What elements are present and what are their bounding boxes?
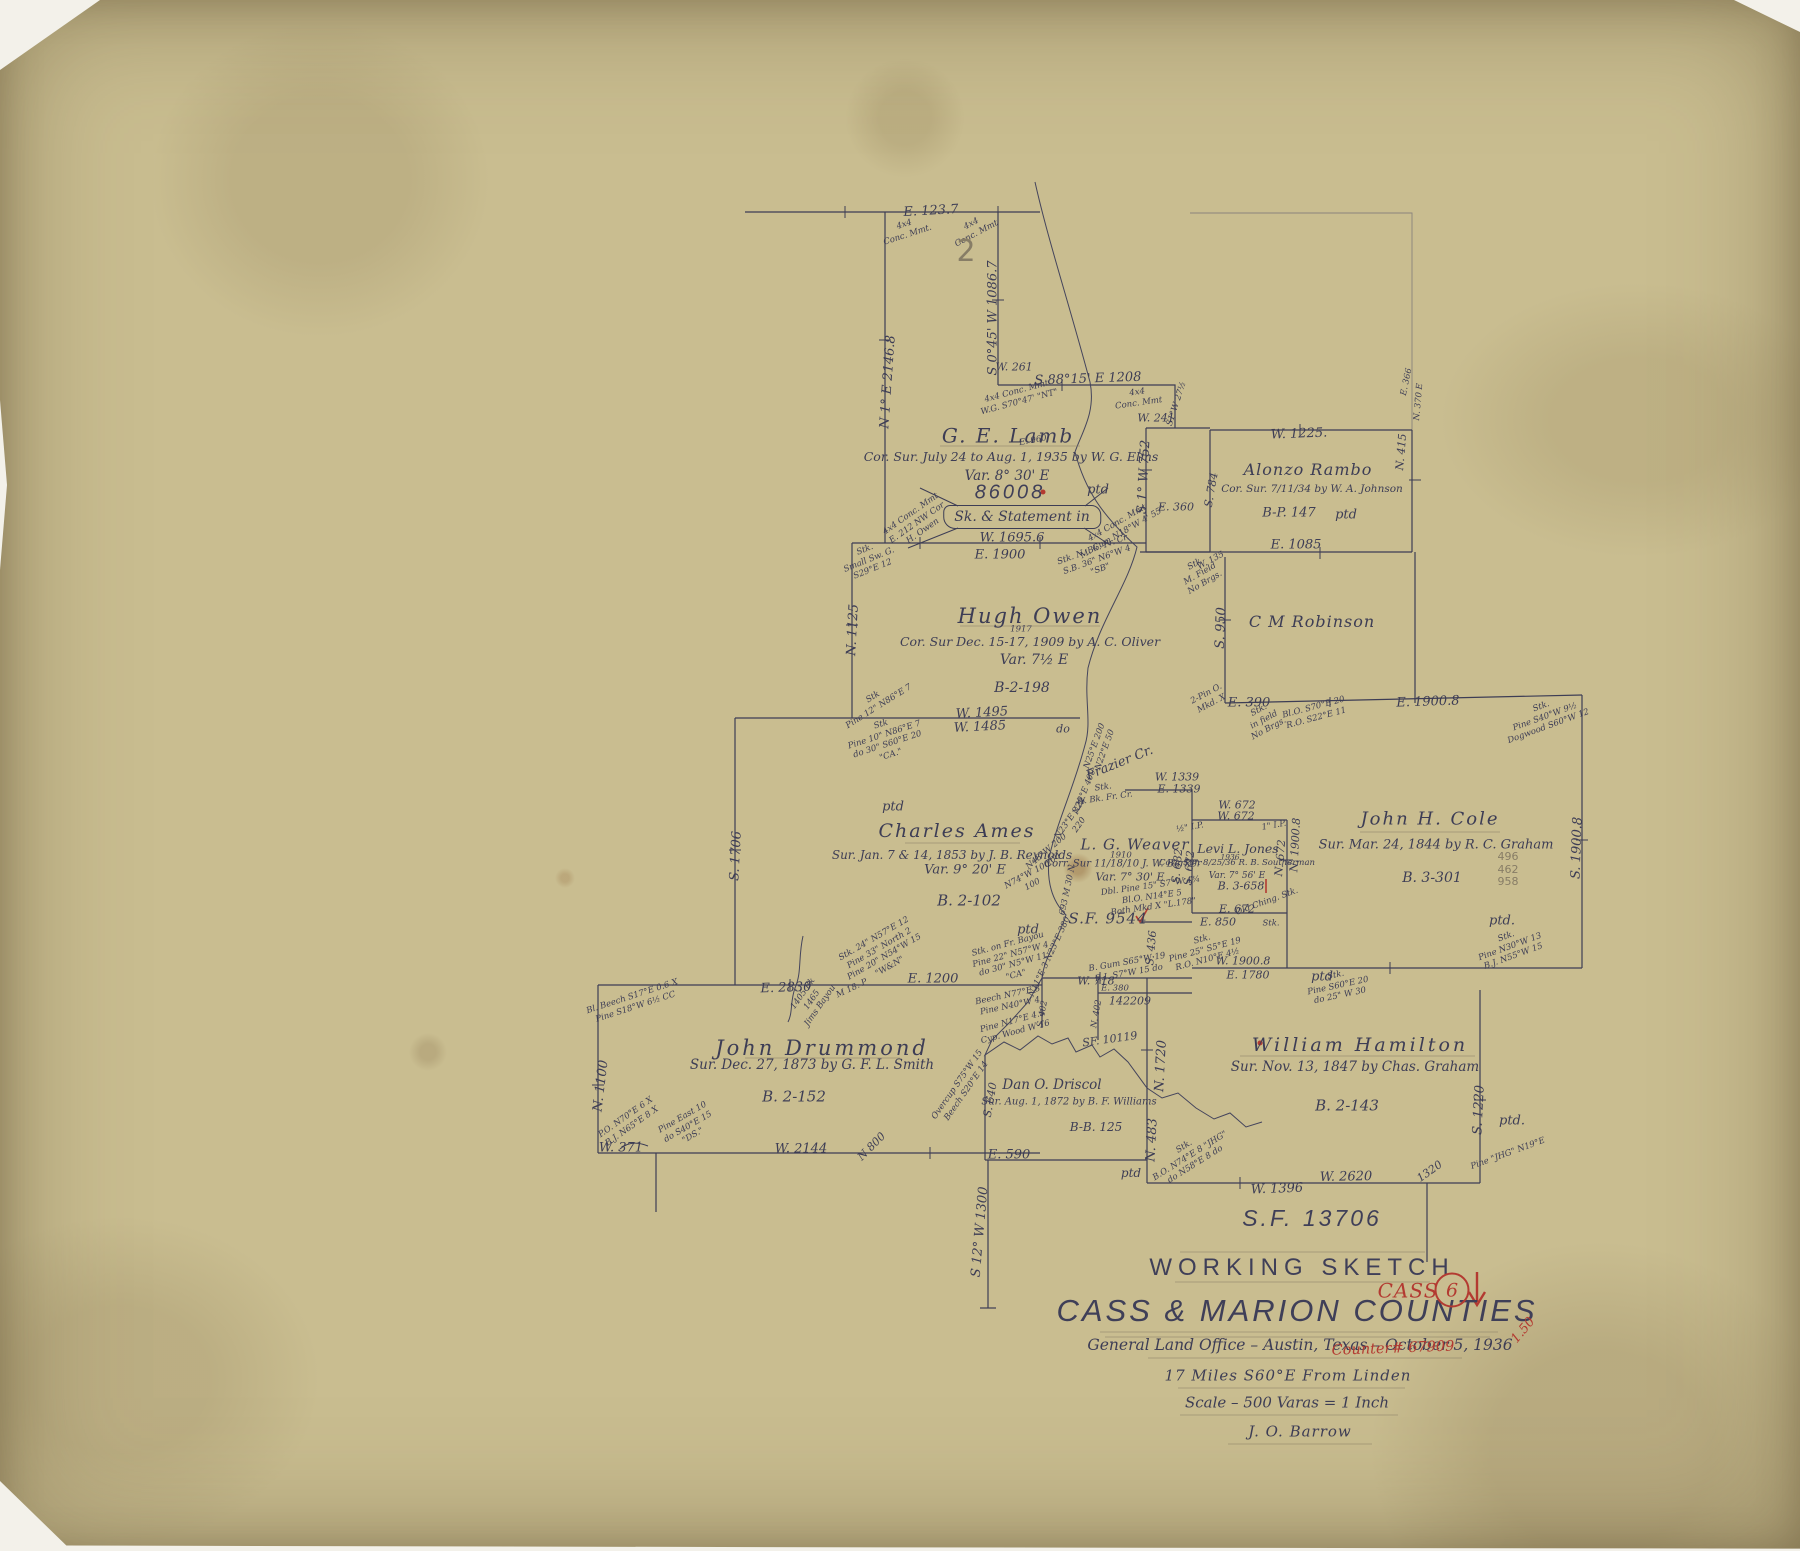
sheet-file-number: S.F. 13706 <box>1242 1205 1382 1231</box>
ptd-note-ames: ptd <box>882 801 904 816</box>
survey-ref-rambo: B-P. 147 <box>1262 507 1315 522</box>
survey-file-lamb: 86008 <box>975 482 1046 505</box>
measurement-label: W. 1485 <box>953 719 1006 737</box>
measurement-label: S. 1706 <box>728 831 746 882</box>
measurement-label: W. 1396 <box>1251 1182 1304 1199</box>
survey-note-hamilton: Sur. Nov. 13, 1847 by Chas. Graham <box>1231 1060 1479 1076</box>
survey-ref-ames: B. 2-102 <box>937 892 1001 909</box>
survey-ref-drummond: B. 2-152 <box>762 1088 826 1105</box>
measurement-label: W. 261 <box>995 362 1032 375</box>
sheet-scale-line: Scale – 500 Varas = 1 Inch <box>1185 1394 1389 1411</box>
measurement-label: N. 1720 <box>1153 1040 1171 1093</box>
survey-note-owen: Cor. Sur Dec. 15-17, 1909 by A. C. Olive… <box>900 635 1160 649</box>
measurement-label: W. 1900.8 <box>1216 956 1271 969</box>
measurement-label: W. 2620 <box>1320 1170 1373 1186</box>
margin-figures: 496 462 958 <box>1498 851 1519 889</box>
survey-sketch-sheet: G. E. Lamb Cor. Sur. July 24 to Aug. 1, … <box>0 0 1800 1551</box>
ptd-note-cole: ptd. <box>1489 915 1515 930</box>
survey-name-driscol: Dan O. Driscol <box>1002 1078 1101 1094</box>
survey-note-rambo: Cor. Sur. 7/11/34 by W. A. Johnson <box>1221 483 1403 495</box>
county-stamp: CASS <box>1378 1280 1439 1303</box>
measurement-label: E. 380 <box>1101 984 1129 995</box>
ptd-note-lamb: ptd <box>1087 484 1109 499</box>
survey-note-driscol: Sur. Aug. 1, 1872 by B. F. Williams <box>981 1096 1156 1108</box>
ptd-note-driscol: ptd <box>1121 1167 1141 1181</box>
ptd-note: ptd <box>1017 924 1039 939</box>
measurement-label: E. 1200 <box>908 973 959 988</box>
statement-box: Sk. & Statement in <box>943 505 1101 529</box>
measurement-label: E. 1085 <box>1271 539 1322 554</box>
measurement-label: W. 1695.6 <box>980 532 1045 547</box>
survey-ref-cole: B. 3-301 <box>1402 870 1462 886</box>
survey-note-lamb: Cor. Sur. July 24 to Aug. 1, 1935 by W. … <box>864 450 1159 464</box>
stake-note: Stk. <box>1262 919 1279 930</box>
measurement-label: N. 1125 <box>845 604 863 657</box>
measurement-label: E. 1900.8 <box>1396 694 1460 711</box>
measurement-label: S. 950 <box>1214 607 1230 649</box>
survey-name-ames: Charles Ames <box>878 821 1035 843</box>
sheet-location-line: 17 Miles S60°E From Linden <box>1165 1367 1412 1384</box>
block-number: 2 <box>956 235 975 270</box>
survey-name-rambo: Alonzo Rambo <box>1244 461 1373 479</box>
survey-ref-hamilton: B. 2-143 <box>1315 1097 1379 1114</box>
measurement-label: E. 1339 <box>1157 784 1200 797</box>
measurement-label: S. 1900.8 <box>1569 817 1586 880</box>
ptd-note-rambo: ptd <box>1335 509 1357 524</box>
survey-name-hamilton: William Hamilton <box>1252 1035 1468 1057</box>
survey-note-drummond: Sur. Dec. 27, 1873 by G. F. L. Smith <box>690 1058 934 1074</box>
survey-ref-jones: B. 3-658 <box>1218 881 1265 894</box>
survey-var-ames: Var. 9° 20' E <box>924 864 1006 879</box>
survey-name-lamb: G. E. Lamb <box>942 425 1074 448</box>
ditto-note: do <box>1056 724 1070 737</box>
measurement-label: E. 590 <box>988 1149 1031 1164</box>
survey-name-cole: John H. Cole <box>1360 810 1499 831</box>
measurement-label: E. 1900 <box>975 549 1026 564</box>
measurement-label: W. 672 <box>1217 811 1254 824</box>
survey-var-owen: Var. 7½ E <box>1000 652 1068 668</box>
file-number: 142209 <box>1109 996 1151 1009</box>
sheet-number-stamp: 6 <box>1435 1273 1470 1308</box>
survey-name-robinson: C M Robinson <box>1249 613 1375 631</box>
measurement-label: E. 1780 <box>1226 970 1269 983</box>
measurement-label: W. 2144 <box>775 1143 827 1158</box>
measurement-label: S. 1220 <box>1471 1085 1489 1136</box>
ptd-note: ptd <box>1311 971 1333 986</box>
survey-ref-owen: B-2-198 <box>994 680 1050 696</box>
measurement-label: S 0°45' W 1086.7 <box>987 260 1002 375</box>
sheet-author: J. O. Barrow <box>1248 1423 1352 1440</box>
measurement-label: W. 1225. <box>1270 427 1327 444</box>
survey-ref-driscol: B-B. 125 <box>1070 1121 1122 1135</box>
ptd-note-hamilton: ptd. <box>1499 1115 1525 1130</box>
measurement-label: W. 371 <box>599 1142 643 1157</box>
